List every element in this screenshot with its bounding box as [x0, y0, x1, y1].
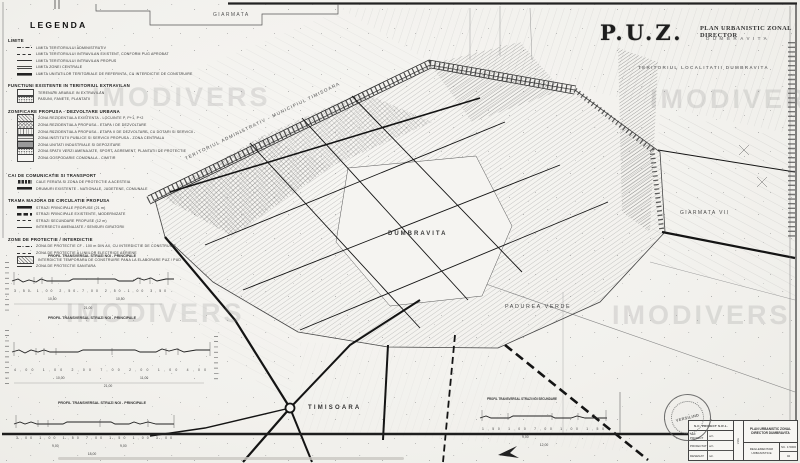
cartouche-scale-block: SC. 1:5000 02 [780, 443, 797, 460]
cartouche-name: teh. [708, 451, 733, 460]
legend-item: ZONA DE PROTECTIE CF - 100 m DIN AX, CU … [17, 244, 214, 249]
profile4-sub-left: 9,00 [522, 435, 529, 439]
line-dashdot-symbol [17, 243, 32, 249]
map-label-timisoara: TIMISOARA [308, 405, 361, 411]
legend-item-label: ZONA REZIDENTIALA PROPUSA - ETAPA II DE … [38, 130, 193, 134]
cartouche-mid-label: VIZE [737, 437, 741, 443]
profile2-title: PROFIL TRANSVERSAL STRAZI NOI - PRINCIPA… [48, 315, 136, 320]
map-label-giarmata-vii: GIARMATA VII [680, 210, 729, 216]
profile1-sub-left: 10,50 [48, 297, 57, 301]
legend-item-label: LIMITA ZONEI CENTRALE [36, 65, 82, 69]
legend-item-label: ZONA DE PROTECTIE CF - 100 m DIN AX, CU … [36, 244, 176, 248]
profile2-total: 21,00 [104, 384, 113, 388]
legend-section-heading: TRAMA MAJORA DE CIRCULATIE PROPUSA [8, 198, 214, 203]
legend-item-label: STRAZI SECUNDARE PROPUSE (12 m) [36, 219, 107, 223]
legend-section: FUNCTIUNI EXISTENTE IN TERITORIUL EXTRAV… [8, 83, 214, 102]
cartouche-role: DESENAT [689, 451, 708, 460]
line-thick-symbol [17, 71, 32, 77]
map-label-giarmata: GIARMATA [213, 12, 250, 18]
scan-smudge [58, 457, 404, 460]
cartouche-row: DESENAT teh. [689, 451, 733, 460]
profile1-dims: 3,50 1,00 2,50 7,00 2,50 1,00 3,50 [14, 289, 166, 293]
profile4-title: PROFIL TRANSVERSAL STRAZI NOI SECUNDARE [487, 397, 557, 401]
line-solid-symbol [17, 263, 32, 269]
legend-item-label: ZONA SPATII VERZI AMENAJATE, SPORT, AGRE… [38, 149, 186, 153]
legend-item: ZONA DE PROTECTIE SANITARA [17, 264, 214, 269]
line-thick-symbol [17, 186, 32, 192]
legend-title: LEGENDA [30, 20, 214, 30]
legend-item: ZONA INSTITUTII PUBLICE SI SERVICII PROP… [17, 136, 214, 141]
legend-section-heading: ZONE DE PROTECTIE / INTERDICTIE [8, 237, 214, 242]
profile3-sub-right: 9,00 [120, 444, 127, 448]
profile2-sub-left: 10,00 [56, 376, 65, 380]
cartouche-right: PLAN URBANISTIC ZONAL DIRECTOR DUMBRAVIT… [744, 421, 797, 460]
line-double-symbol [17, 64, 32, 70]
legend-item-label: PASUNI, FANETE, PLANTATII [38, 97, 90, 101]
legend-panel: LEGENDA LIMITELIMITA TERITORIULUI ADMINI… [8, 20, 214, 276]
cartouche-plate-number: 02 [780, 452, 797, 460]
roundabout-node [286, 404, 295, 413]
legend-section: ZONE DE PROTECTIE / INTERDICTIEZONA DE P… [8, 237, 214, 269]
approval-stamp-inner: VERSILIND [667, 397, 707, 437]
profile1-sub-right: 10,50 [116, 297, 125, 301]
legend-item: LIMITA TERITORIULUI INTRAVILAN PROPUS [17, 58, 214, 63]
rail-symbol [17, 179, 32, 185]
doc-locality: DUMBRAVITA [706, 36, 792, 41]
legend-item-label: ZONA DE PROTECTIE A LINIILOR ELECTRICE A… [36, 251, 137, 255]
legend-section-heading: ZONIFICARE PROPUSA - DEZVOLTARE URBANA [8, 109, 214, 114]
legend-item-label: ZONA INSTITUTII PUBLICE SI SERVICII PROP… [38, 136, 164, 140]
legend-section: LIMITELIMITA TERITORIULUI ADMINISTRATIVL… [8, 38, 214, 76]
map-label-padurea-verde: PADUREA VERDE [505, 304, 571, 310]
legend-item: ZONA REZIDENTIALA EXISTENTA - LOCUINTE P… [17, 116, 214, 121]
legend-item: ZONA REZIDENTIALA PROPUSA - ETAPA I DE D… [17, 123, 214, 128]
legend-item: ZONA DE PROTECTIE A LINIILOR ELECTRICE A… [17, 251, 214, 256]
legend-section: TRAMA MAJORA DE CIRCULATIE PROPUSASTRAZI… [8, 198, 214, 230]
cartouche-plansa: REGLEMENTARI URBANISTICE [744, 443, 780, 460]
legend-item: PASUNI, FANETE, PLANTATII [17, 97, 214, 102]
line-solid-symbol [17, 58, 32, 64]
scanned-map-sheet: GIARMATA TERITORIUL ADMINISTRATIV - MUNI… [0, 0, 800, 463]
cartouche-row: PROIECTAT arh. [689, 441, 733, 451]
legend-item: STRAZI PRINCIPALE EXISTENTE, MODERNIZATE [17, 212, 214, 217]
cartouche-project-title: PLAN URBANISTIC ZONAL DIRECTOR DUMBRAVIT… [744, 421, 797, 443]
legend-item: LIMITA ZONEI CENTRALE [17, 65, 214, 70]
profile1-total: 21,00 [84, 306, 93, 310]
legend-item-label: ZONA GOSPODARIE COMUNALA - CIMITIR [38, 156, 116, 160]
cartouche-role: PROIECTAT [689, 441, 708, 450]
cartouche-name: arh. [708, 431, 733, 440]
legend-item-label: INTERDICTIE TEMPORARA DE CONSTRUIRE PANA… [38, 258, 181, 262]
legend-item-label: ZONA DE PROTECTIE SANITARA [36, 264, 96, 268]
approval-stamp-text: VERSILIND [675, 413, 699, 423]
legend-section: CAI DE COMUNICATIE SI TRANSPORTCALE FERA… [8, 173, 214, 192]
legend-item: ZONA UNITATI INDUSTRIALE SI DEPOZITARE [17, 142, 214, 147]
legend-item-label: LIMITA TERITORIULUI ADMINISTRATIV [36, 46, 106, 50]
map-label-dumbravita: DUMBRAVITA [388, 231, 447, 237]
legend-item: ZONA REZIDENTIALA PROPUSA - ETAPA II DE … [17, 129, 214, 134]
legend-item: DRUMURI EXISTENTE - NATIONALE, JUDETENE,… [17, 186, 214, 191]
legend-section-heading: LIMITE [8, 38, 214, 43]
swatch-blank-symbol [17, 154, 34, 162]
legend-item: CALE FERATA SI ZONA DE PROTECTIE A ACEST… [17, 180, 214, 185]
legend-item: STRAZI PRINCIPALE PROPUSE (21 m) [17, 205, 214, 210]
profile3-total: 18,00 [88, 452, 97, 456]
cartouche-name: arh. [708, 441, 733, 450]
legend-item: LIMITA TERITORIULUI INTRAVILAN EXISTENT,… [17, 52, 214, 57]
road-dash-symbol [17, 211, 32, 217]
cartouche-scale: SC. 1:5000 [780, 443, 797, 452]
legend-item-label: DRUMURI EXISTENTE - NATIONALE, JUDETENE,… [36, 187, 148, 191]
legend-item-label: LIMITA TERITORIULUI INTRAVILAN PROPUS [36, 59, 116, 63]
legend-item-label: STRAZI PRINCIPALE EXISTENTE, MODERNIZATE [36, 212, 126, 216]
line-thick-symbol [17, 205, 32, 211]
profile3-sub-left: 9,00 [52, 444, 59, 448]
doc-title-puz: P.U.Z. [600, 20, 684, 45]
legend-item-label: STRAZI PRINCIPALE PROPUSE (21 m) [36, 206, 106, 210]
profile4-total: 12,00 [540, 443, 549, 447]
legend-item: LIMITA UNITATILOR TERITORIALE DE REFERIN… [17, 71, 214, 76]
legend-item: ZONA SPATII VERZI AMENAJATE, SPORT, AGRE… [17, 149, 214, 154]
legend-item: INTERSECTII AMENAJATE / SENSURI GIRATORI… [17, 225, 214, 230]
legend-item-label: LIMITA UNITATILOR TERITORIALE DE REFERIN… [36, 72, 193, 76]
legend-item-label: CALE FERATA SI ZONA DE PROTECTIE A ACEST… [36, 180, 130, 184]
line-solid-symbol [17, 224, 32, 230]
cartouche-mid: VIZE [734, 421, 744, 460]
legend-item: LIMITA TERITORIULUI ADMINISTRATIV [17, 45, 214, 50]
map-caption: TERITORIUL LOCALITATII DUMBRAVITA [638, 65, 769, 70]
legend-section-heading: CAI DE COMUNICATIE SI TRANSPORT [8, 173, 214, 178]
legend-item-label: ZONA REZIDENTIALA EXISTENTA - LOCUINTE P… [38, 116, 144, 120]
legend-item-label: LIMITA TERITORIULUI INTRAVILAN EXISTENT,… [36, 52, 169, 56]
legend-item: INTERDICTIE TEMPORARA DE CONSTRUIRE PANA… [17, 257, 214, 262]
swatch-dots-symbol [17, 95, 34, 103]
legend-item: TERENURI ARABILE IN EXTRAVILAN [17, 90, 214, 95]
legend-item-label: ZONA REZIDENTIALA PROPUSA - ETAPA I DE D… [38, 123, 147, 127]
profile2-sub-right: 11,00 [140, 376, 148, 380]
legend-section-heading: FUNCTIUNI EXISTENTE IN TERITORIUL EXTRAV… [8, 83, 214, 88]
line-dashdot-symbol [17, 45, 32, 51]
legend-item-label: ZONA UNITATI INDUSTRIALE SI DEPOZITARE [38, 143, 121, 147]
legend-item: STRAZI SECUNDARE PROPUSE (12 m) [17, 218, 214, 223]
line-dash-symbol [17, 218, 32, 224]
line-dash-symbol [17, 51, 32, 57]
legend-item-label: INTERSECTII AMENAJATE / SENSURI GIRATORI… [36, 225, 125, 229]
legend-item: ZONA GOSPODARIE COMUNALA - CIMITIR [17, 156, 214, 161]
legend-sections: LIMITELIMITA TERITORIULUI ADMINISTRATIVL… [8, 38, 214, 269]
profile3-title: PROFIL TRANSVERSAL STRAZI NOI - PRINCIPA… [58, 400, 146, 405]
legend-section: ZONIFICARE PROPUSA - DEZVOLTARE URBANAZO… [8, 109, 214, 161]
legend-item-label: TERENURI ARABILE IN EXTRAVILAN [38, 91, 104, 95]
